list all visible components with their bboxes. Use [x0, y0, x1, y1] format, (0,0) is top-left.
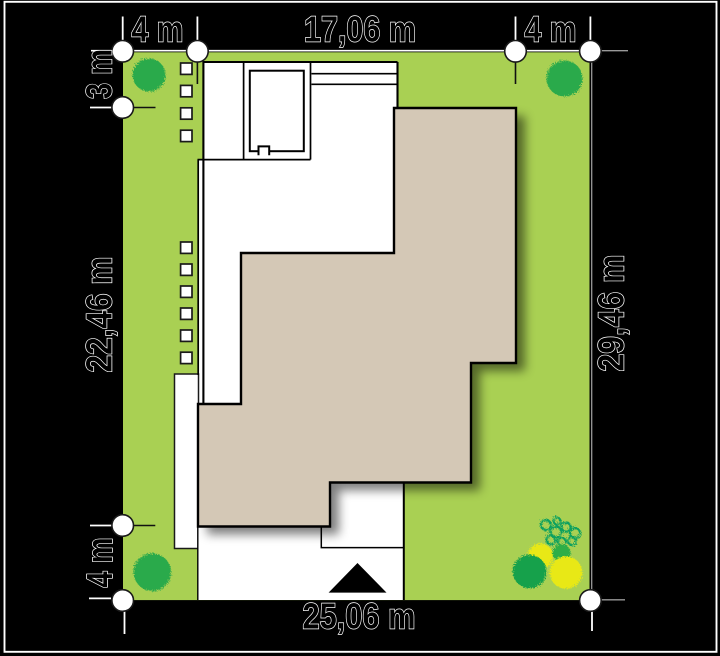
svg-text:22,46 m: 22,46 m	[79, 257, 120, 373]
svg-text:25,06 m: 25,06 m	[303, 596, 416, 637]
svg-text:29,46 m: 29,46 m	[591, 255, 632, 372]
svg-text:4 m: 4 m	[525, 8, 577, 49]
svg-text:4 m: 4 m	[132, 8, 184, 49]
svg-text:17,06 m: 17,06 m	[304, 8, 416, 49]
svg-text:4 m: 4 m	[79, 538, 120, 588]
svg-text:3 m: 3 m	[79, 49, 120, 99]
